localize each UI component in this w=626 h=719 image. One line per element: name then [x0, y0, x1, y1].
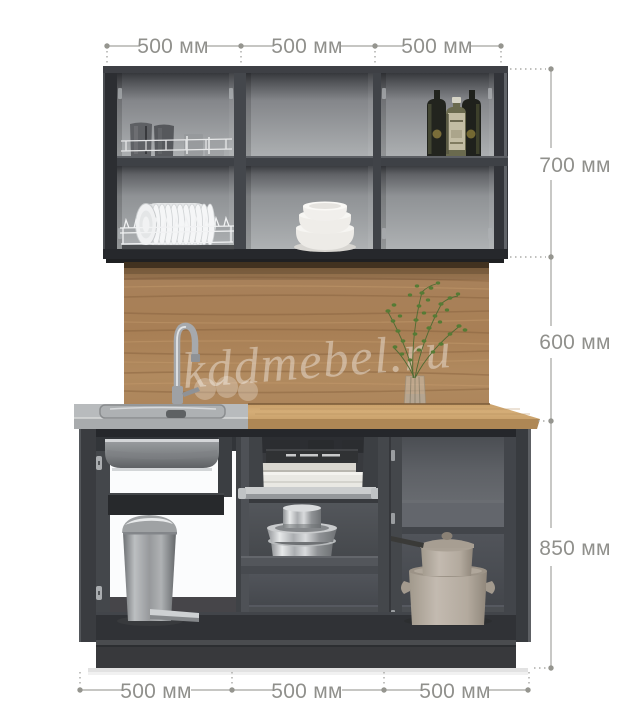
svg-text:500 мм: 500 мм [271, 35, 343, 58]
svg-text:500 мм: 500 мм [137, 35, 209, 58]
svg-text:500 мм: 500 мм [271, 680, 343, 703]
svg-text:500 мм: 500 мм [401, 35, 473, 58]
svg-text:500 мм: 500 мм [120, 680, 192, 703]
svg-text:500 мм: 500 мм [419, 680, 491, 703]
svg-text:850 мм: 850 мм [539, 537, 611, 560]
svg-text:700 мм: 700 мм [539, 154, 611, 177]
svg-text:600 мм: 600 мм [539, 331, 611, 354]
